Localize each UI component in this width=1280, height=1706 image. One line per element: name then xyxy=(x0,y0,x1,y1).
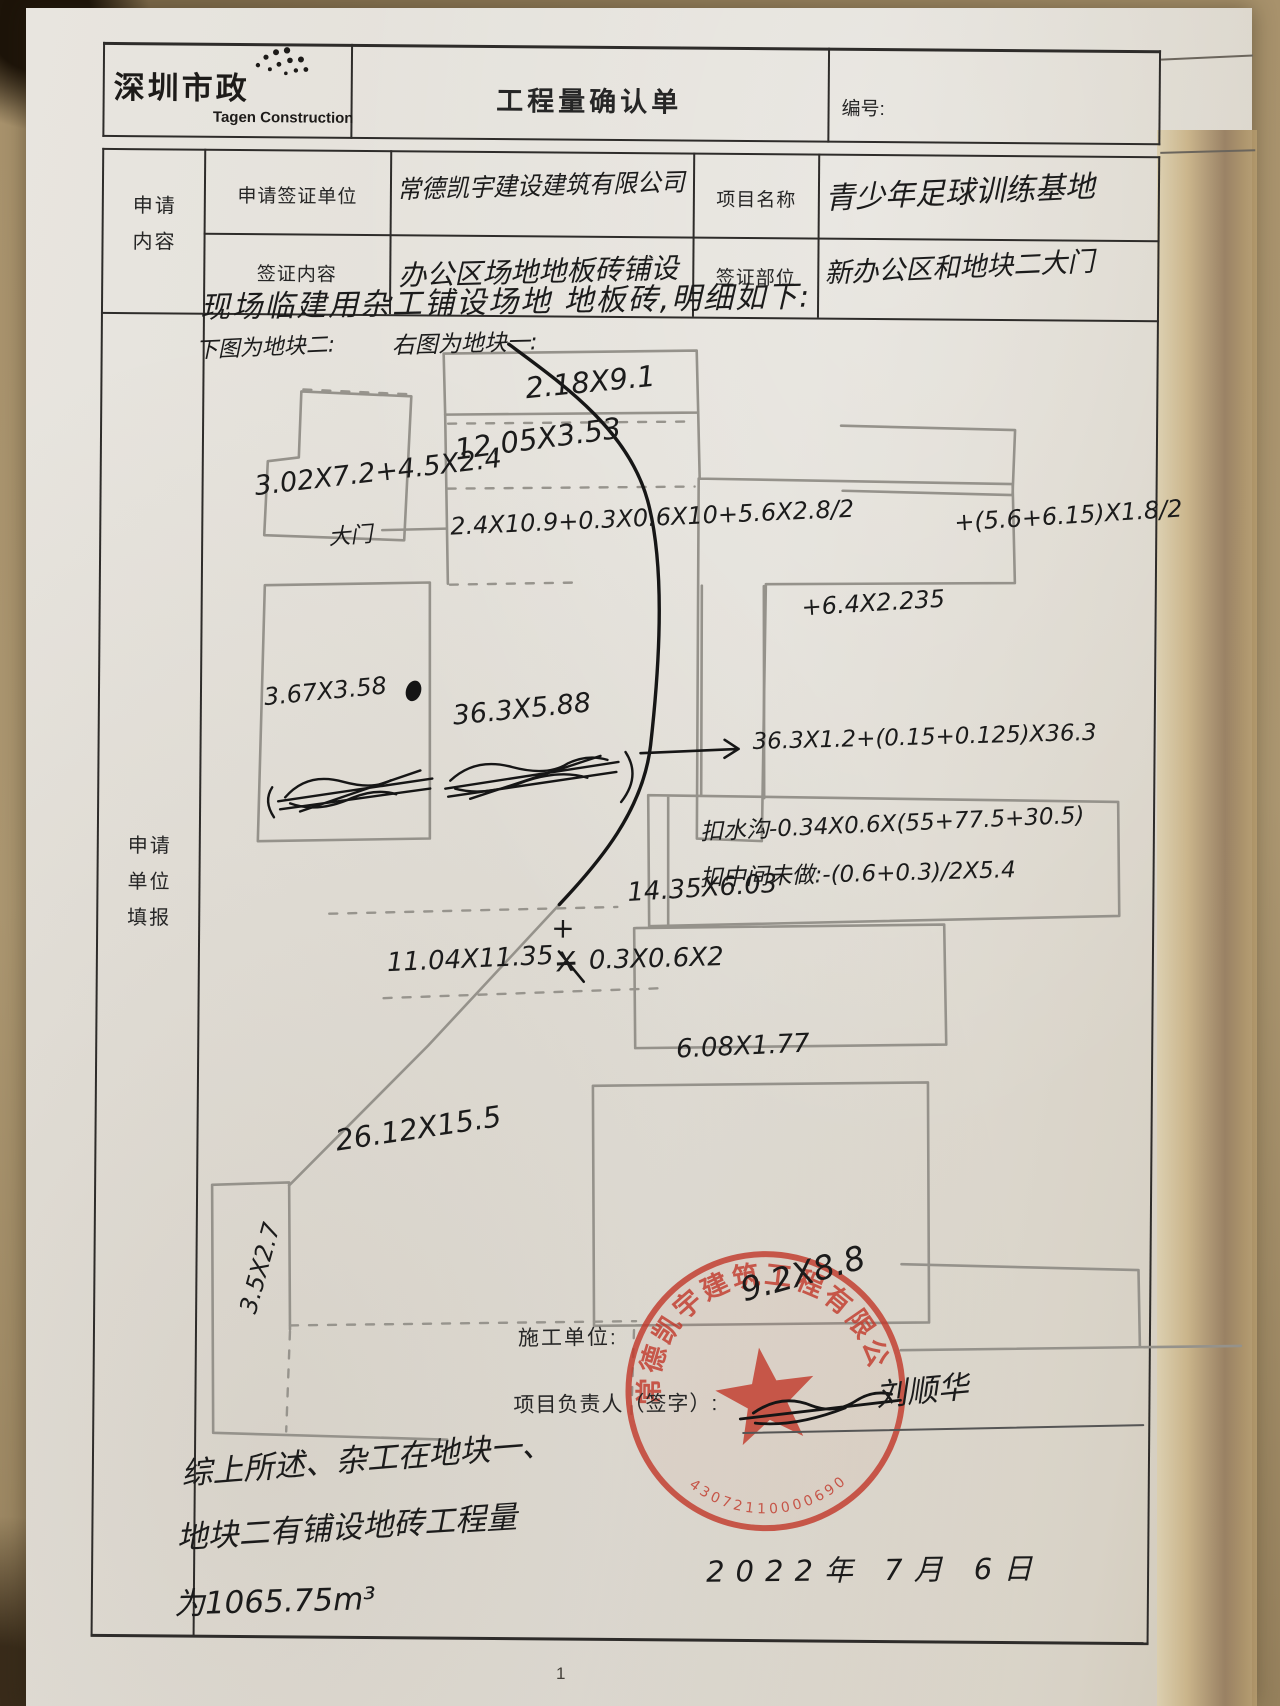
next-page-line-top xyxy=(1161,55,1253,61)
gate-label: 大门 xyxy=(327,516,373,551)
formula-lower-a: 11.04X11.35 xyxy=(386,941,554,978)
crossed-out-scribble-1 xyxy=(268,769,432,818)
section-label-line2: 单位 xyxy=(127,864,171,900)
left-header-line1: 申请 xyxy=(133,188,177,224)
formula-lower-struck: X xyxy=(556,947,576,979)
logo-cn-text: 深圳市政 xyxy=(114,62,354,109)
dim-stamp-area: 9.2X8.8 xyxy=(736,1237,869,1309)
logo-en-text: Tagen Construction xyxy=(113,108,353,127)
header-divider-2 xyxy=(827,48,830,143)
page-number: 1 xyxy=(556,1664,565,1684)
table-col1-divider xyxy=(193,149,207,1637)
top-right-small-rect xyxy=(841,426,1016,495)
legend-left: 下图为地块二: xyxy=(195,326,336,364)
stamp-number-text: 43072110000690 xyxy=(685,1454,855,1530)
section-label-line1: 申请 xyxy=(128,828,172,864)
row1-label2: 项目名称 xyxy=(695,185,818,213)
header-left-border xyxy=(102,42,105,137)
photo-of-document: 深圳市政 Tagen Construction 工程量确认单 编号: 申请 内容… xyxy=(0,0,1280,1706)
left-header-line2: 内容 xyxy=(132,224,176,260)
left-header-label: 申请 内容 xyxy=(109,188,200,261)
formula-lower-plus: + xyxy=(551,911,575,944)
stamp-star-icon xyxy=(710,1340,822,1448)
dim-second: 12.05X3.53 xyxy=(453,411,623,467)
formula-main-b: +(5.6+6.15)X1.8/2 xyxy=(953,494,1183,536)
right-of-stamp-lines xyxy=(901,1264,1242,1353)
dim-long-strip: 36.3X5.88 xyxy=(451,687,592,731)
document: 深圳市政 Tagen Construction 工程量确认单 编号: 申请 内容… xyxy=(0,0,1280,1706)
dim-left-small: 3.5X2.7 xyxy=(234,1220,286,1317)
wing-outline xyxy=(695,413,1016,843)
header-top-border xyxy=(103,42,1161,53)
formula-main-c: +6.4X2.235 xyxy=(801,585,946,622)
formula-main: 2.4X10.9+0.3X0.6X10+5.6X2.8/2 xyxy=(450,495,855,541)
header-right-border xyxy=(1158,50,1161,145)
table-top-border xyxy=(102,148,1160,158)
formula-lower-b: 0.3X0.6X2 xyxy=(588,942,724,976)
manager-signature: 刘顺华 xyxy=(873,1361,970,1415)
manager-label: 项目负责人（签字）: xyxy=(513,1387,718,1419)
section-label-line3: 填报 xyxy=(127,900,171,936)
summary-line2: 地块二有铺设地砖工程量 xyxy=(175,1491,518,1557)
plot-b-outline xyxy=(258,581,432,842)
table-bottom-border xyxy=(91,1634,1149,1645)
company-logo: 深圳市政 Tagen Construction xyxy=(113,62,353,127)
column-bottom-edge xyxy=(382,528,446,531)
dim-large-area: 26.12X15.5 xyxy=(333,1099,504,1158)
dim-top-rect: 2.18X9.1 xyxy=(524,359,657,405)
arrow-icon xyxy=(640,739,738,758)
formula-arrow: 36.3X1.2+(0.15+0.125)X36.3 xyxy=(752,720,1097,755)
number-label: 编号: xyxy=(841,94,884,121)
row1-value2: 青少年足球训练基地 xyxy=(824,162,1096,218)
contractor-label: 施工单位: xyxy=(518,1321,618,1352)
plot-b-dims: 3.67X3.58 xyxy=(263,671,388,711)
deduction-gutter: 扣水沟-0.34X0.6X(55+77.5+30.5) xyxy=(699,796,1085,847)
ink-blob xyxy=(403,679,424,704)
dim-mid-rect: 14.35X6.03 xyxy=(626,869,778,908)
table-row1-divider xyxy=(204,233,1160,243)
row1-label: 申请签证单位 xyxy=(205,181,390,209)
section-label: 申请 单位 填报 xyxy=(107,828,192,937)
row1-value: 常德凯宇建设建筑有限公司 xyxy=(396,162,685,206)
form-title: 工程量确认单 xyxy=(351,78,828,121)
legend-right: 右图为地块一: xyxy=(391,322,538,360)
summary-line3: 为1065.75m³ xyxy=(173,1573,376,1623)
header-bottom-border xyxy=(102,135,1160,145)
table-vdivider-3 xyxy=(817,154,820,318)
next-page-line-bottom xyxy=(1160,149,1255,154)
table-left-border xyxy=(91,148,105,1636)
strip-lines xyxy=(700,586,766,798)
dim-small-rect: 6.08X1.77 xyxy=(676,1029,811,1065)
tall-left-edge xyxy=(444,415,449,584)
crossed-out-scribble-2 xyxy=(445,751,632,802)
table-right-border xyxy=(1147,156,1161,1644)
date-text: 2022年 7月 6日 xyxy=(706,1545,1044,1590)
summary-line1: 综上所述、杂工在地块一、 xyxy=(179,1419,553,1493)
signature-underline xyxy=(743,1422,1143,1436)
row2-value2: 新办公区和地块二大门 xyxy=(823,240,1094,291)
